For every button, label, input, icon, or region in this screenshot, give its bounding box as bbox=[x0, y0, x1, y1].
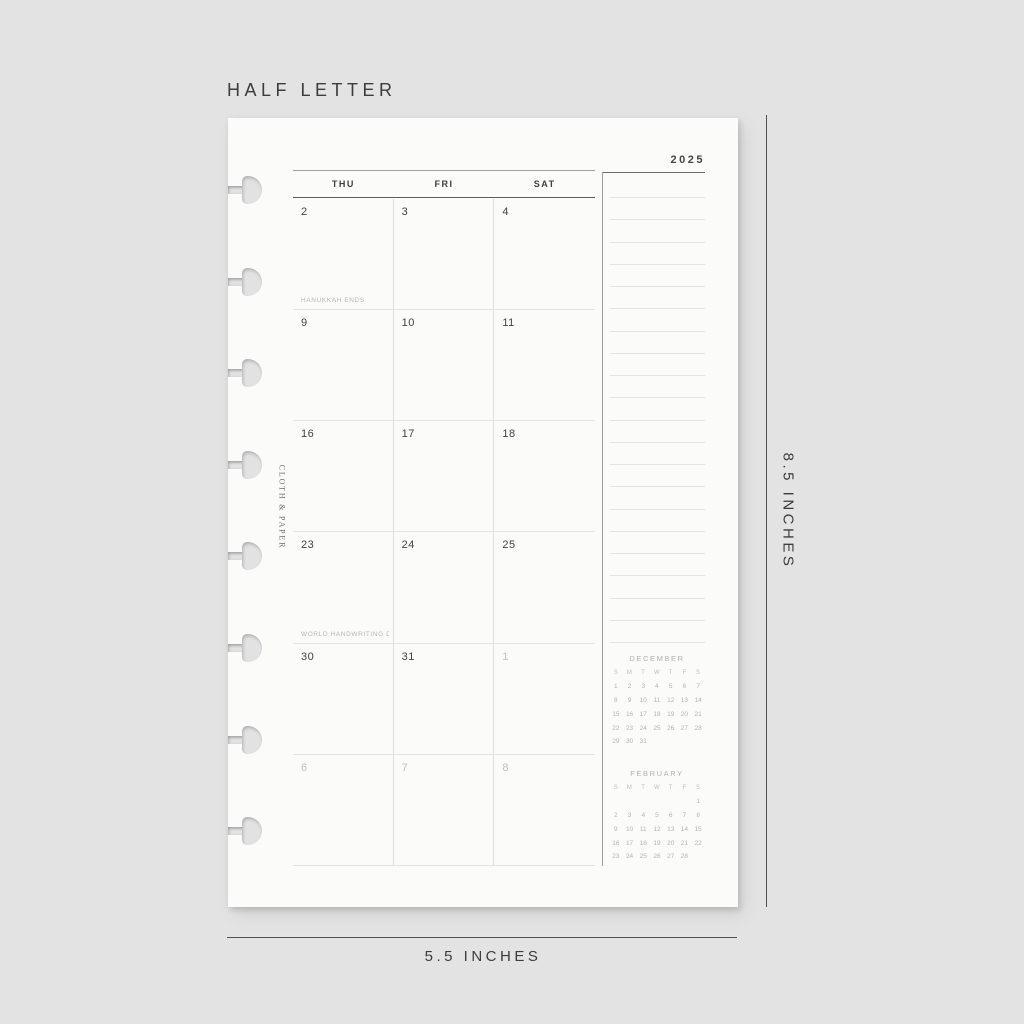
note-line bbox=[610, 621, 705, 643]
mini-calendar-december: DECEMBER SMTWTFS123456789101112131415161… bbox=[609, 654, 705, 749]
mini-calendar-title: FEBRUARY bbox=[609, 769, 705, 778]
note-line bbox=[610, 376, 705, 398]
mini-calendar-day: 29 bbox=[612, 738, 619, 745]
day-number: 16 bbox=[301, 428, 314, 440]
mini-calendar-day: 10 bbox=[640, 697, 647, 704]
mini-calendar-day: 26 bbox=[667, 725, 674, 732]
binding-hole bbox=[228, 817, 264, 845]
day-number: 11 bbox=[502, 317, 514, 329]
mini-calendar-day: 8 bbox=[614, 697, 618, 704]
day-cell: 25 bbox=[494, 532, 595, 643]
mini-calendar-day: 4 bbox=[655, 683, 659, 690]
day-cell: 10 bbox=[394, 310, 495, 421]
day-cell: 6 bbox=[293, 755, 394, 866]
mini-calendar-day: 21 bbox=[695, 711, 702, 718]
day-number: 4 bbox=[502, 206, 509, 218]
mini-calendar-day: 24 bbox=[640, 725, 647, 732]
mini-calendar-day-header: F bbox=[682, 785, 686, 791]
day-number: 18 bbox=[502, 428, 515, 440]
mini-calendar-day: 15 bbox=[612, 711, 619, 718]
mini-calendar-day: 17 bbox=[626, 840, 633, 847]
year-underline-rule bbox=[602, 172, 705, 173]
mini-calendar-day-header: T bbox=[641, 670, 645, 676]
day-number: 25 bbox=[502, 539, 515, 551]
note-line bbox=[610, 510, 705, 532]
day-cell: 17 bbox=[394, 421, 495, 532]
mini-calendar-day: 25 bbox=[653, 725, 660, 732]
mini-calendar-day: 5 bbox=[669, 683, 673, 690]
mini-calendar-day-header: T bbox=[669, 670, 673, 676]
day-number: 17 bbox=[402, 428, 415, 440]
note-line bbox=[610, 220, 705, 242]
day-event-label: WORLD HANDWRITING DAY bbox=[301, 631, 389, 638]
note-line bbox=[610, 532, 705, 554]
mini-calendar-day-header: T bbox=[641, 785, 645, 791]
binding-hole-circle bbox=[242, 634, 262, 662]
note-line bbox=[610, 599, 705, 621]
mini-calendar-day: 16 bbox=[612, 840, 619, 847]
note-line bbox=[610, 421, 705, 443]
mini-calendar-day: 12 bbox=[667, 697, 674, 704]
mini-calendar-day-header: S bbox=[614, 785, 618, 791]
day-number: 9 bbox=[301, 317, 308, 329]
day-number-next-month: 7 bbox=[402, 762, 409, 774]
height-dimension-line bbox=[766, 115, 767, 907]
mini-calendar-day: 20 bbox=[681, 711, 688, 718]
year-label: 2025 bbox=[671, 154, 705, 166]
day-cell: 4 bbox=[494, 199, 595, 310]
mini-calendar-day: 3 bbox=[641, 683, 645, 690]
mini-calendar-day: 31 bbox=[640, 738, 647, 745]
note-line bbox=[610, 354, 705, 376]
mini-calendar-day: 22 bbox=[612, 725, 619, 732]
day-cell: 3 bbox=[394, 199, 495, 310]
day-cell: 11 bbox=[494, 310, 595, 421]
mini-calendar-grid: SMTWTFS123456789101112131415161718192021… bbox=[609, 781, 705, 864]
mini-calendar-day: 20 bbox=[667, 840, 674, 847]
mini-calendar-day: 9 bbox=[614, 826, 618, 833]
day-number: 10 bbox=[402, 317, 415, 329]
day-cell: 1 bbox=[494, 644, 595, 755]
binding-hole bbox=[228, 542, 264, 570]
mini-calendar-day: 6 bbox=[669, 812, 673, 819]
mini-calendar-day-header: W bbox=[654, 670, 660, 676]
day-number: 31 bbox=[402, 651, 415, 663]
mini-calendar-day-header: F bbox=[682, 670, 686, 676]
day-cell: 23WORLD HANDWRITING DAY bbox=[293, 532, 394, 643]
mini-calendar-day: 26 bbox=[653, 853, 660, 860]
mini-calendar-day: 7 bbox=[683, 812, 687, 819]
mini-calendar-day: 19 bbox=[653, 840, 660, 847]
mini-calendar-day: 25 bbox=[640, 853, 647, 860]
weekday-header-fri: FRI bbox=[394, 171, 495, 197]
binding-hole-circle bbox=[242, 359, 262, 387]
weekday-header-row: THU FRI SAT bbox=[293, 170, 595, 198]
mini-calendar-day: 10 bbox=[626, 826, 633, 833]
day-number: 23 bbox=[301, 539, 314, 551]
mini-calendar-day: 12 bbox=[653, 826, 660, 833]
mini-calendar-day-header: S bbox=[614, 670, 618, 676]
binding-hole-circle bbox=[242, 451, 262, 479]
mini-calendar-day: 11 bbox=[640, 826, 647, 833]
mini-calendar-day: 11 bbox=[654, 697, 661, 704]
mini-calendar-day: 1 bbox=[696, 798, 700, 805]
brand-vertical-text: CLOTH & PAPER bbox=[278, 465, 287, 549]
mini-calendar-day: 2 bbox=[614, 812, 618, 819]
planner-page: CLOTH & PAPER 2025 THU FRI SAT 2HANUKKAH… bbox=[228, 118, 738, 907]
note-line bbox=[610, 398, 705, 420]
day-number: 30 bbox=[301, 651, 314, 663]
note-line bbox=[610, 554, 705, 576]
mini-calendar-day: 14 bbox=[681, 826, 688, 833]
mini-calendar-day: 22 bbox=[695, 840, 702, 847]
mini-calendar-day: 30 bbox=[626, 738, 633, 745]
day-event-label: HANUKKAH ENDS bbox=[301, 297, 389, 304]
binding-hole bbox=[228, 451, 264, 479]
width-dimension-label: 5.5 INCHES bbox=[425, 948, 542, 965]
product-mockup: HALF LETTER CLOTH & PAPER 2025 THU FRI S… bbox=[0, 0, 1024, 1024]
note-line bbox=[610, 309, 705, 331]
mini-calendar-day: 27 bbox=[681, 725, 688, 732]
mini-calendar-day: 9 bbox=[628, 697, 632, 704]
binding-hole bbox=[228, 359, 264, 387]
day-number-next-month: 8 bbox=[502, 762, 509, 774]
note-line bbox=[610, 287, 705, 309]
day-number: 3 bbox=[402, 206, 409, 218]
sidebar-divider-line bbox=[602, 172, 603, 866]
mini-calendar-day: 4 bbox=[641, 812, 645, 819]
mini-calendar-day: 7 bbox=[696, 683, 700, 690]
note-line bbox=[610, 265, 705, 287]
mini-calendar-title: DECEMBER bbox=[609, 654, 705, 663]
mini-calendar-day: 17 bbox=[640, 711, 647, 718]
mini-calendar-day: 5 bbox=[655, 812, 659, 819]
day-number-next-month: 1 bbox=[502, 651, 509, 663]
binding-hole-circle bbox=[242, 817, 262, 845]
mini-calendar-day: 8 bbox=[696, 812, 700, 819]
notes-lines bbox=[610, 176, 705, 643]
day-cell: 2HANUKKAH ENDS bbox=[293, 199, 394, 310]
mini-calendar-day: 3 bbox=[628, 812, 632, 819]
note-line bbox=[610, 443, 705, 465]
mini-calendar-day: 18 bbox=[640, 840, 647, 847]
mini-calendar-day-header: W bbox=[654, 785, 660, 791]
day-number: 24 bbox=[402, 539, 415, 551]
mini-calendar-day: 1 bbox=[614, 683, 618, 690]
note-line bbox=[610, 465, 705, 487]
mini-calendar-day-header: M bbox=[627, 785, 632, 791]
mini-calendar-day: 6 bbox=[683, 683, 687, 690]
mini-calendar-grid: SMTWTFS123456789101112131415161718192021… bbox=[609, 666, 705, 749]
binding-hole bbox=[228, 726, 264, 754]
mini-calendar-day-header: S bbox=[696, 670, 700, 676]
day-cell: 18 bbox=[494, 421, 595, 532]
note-line bbox=[610, 198, 705, 220]
width-dimension-line bbox=[227, 937, 737, 938]
mini-calendar-day: 28 bbox=[681, 853, 688, 860]
binding-hole bbox=[228, 176, 264, 204]
day-cell: 9 bbox=[293, 310, 394, 421]
mini-calendar-day-header: S bbox=[696, 785, 700, 791]
mini-calendar-day-header: T bbox=[669, 785, 673, 791]
mini-calendar-day: 24 bbox=[626, 853, 633, 860]
note-line bbox=[610, 576, 705, 598]
mini-calendar-day: 28 bbox=[695, 725, 702, 732]
mini-calendar-day-header: M bbox=[627, 670, 632, 676]
mini-calendar-day: 18 bbox=[653, 711, 660, 718]
size-label: HALF LETTER bbox=[227, 80, 397, 101]
note-line bbox=[610, 243, 705, 265]
binding-hole bbox=[228, 634, 264, 662]
note-line bbox=[610, 176, 705, 198]
day-cell: 16 bbox=[293, 421, 394, 532]
mini-calendar-day: 19 bbox=[667, 711, 674, 718]
binding-hole bbox=[228, 268, 264, 296]
day-cell: 31 bbox=[394, 644, 495, 755]
mini-calendar-day: 23 bbox=[626, 725, 633, 732]
mini-calendar-day: 21 bbox=[681, 840, 688, 847]
mini-calendar-day: 13 bbox=[667, 826, 674, 833]
day-number-next-month: 6 bbox=[301, 762, 308, 774]
binding-hole-circle bbox=[242, 542, 262, 570]
note-line bbox=[610, 332, 705, 354]
mini-calendar-day: 2 bbox=[628, 683, 632, 690]
mini-calendar-day: 27 bbox=[667, 853, 674, 860]
weekday-header-thu: THU bbox=[293, 171, 394, 197]
weekday-header-sat: SAT bbox=[494, 171, 595, 197]
note-line bbox=[610, 487, 705, 509]
binding-hole-circle bbox=[242, 176, 262, 204]
day-number: 2 bbox=[301, 206, 308, 218]
day-cell: 30 bbox=[293, 644, 394, 755]
month-grid: 2HANUKKAH ENDS 3 4 9 10 11 16 17 18 23WO… bbox=[293, 199, 595, 867]
mini-calendar-day: 15 bbox=[695, 826, 702, 833]
mini-calendar-day: 23 bbox=[612, 853, 619, 860]
binding-hole-circle bbox=[242, 726, 262, 754]
mini-calendar-day: 16 bbox=[626, 711, 633, 718]
height-dimension-label: 8.5 INCHES bbox=[780, 453, 797, 570]
day-cell: 7 bbox=[394, 755, 495, 866]
mini-calendar-february: FEBRUARY SMTWTFS123456789101112131415161… bbox=[609, 769, 705, 864]
day-cell: 8 bbox=[494, 755, 595, 866]
mini-calendar-day: 14 bbox=[695, 697, 702, 704]
day-cell: 24 bbox=[394, 532, 495, 643]
binding-hole-circle bbox=[242, 268, 262, 296]
mini-calendar-day: 13 bbox=[681, 697, 688, 704]
